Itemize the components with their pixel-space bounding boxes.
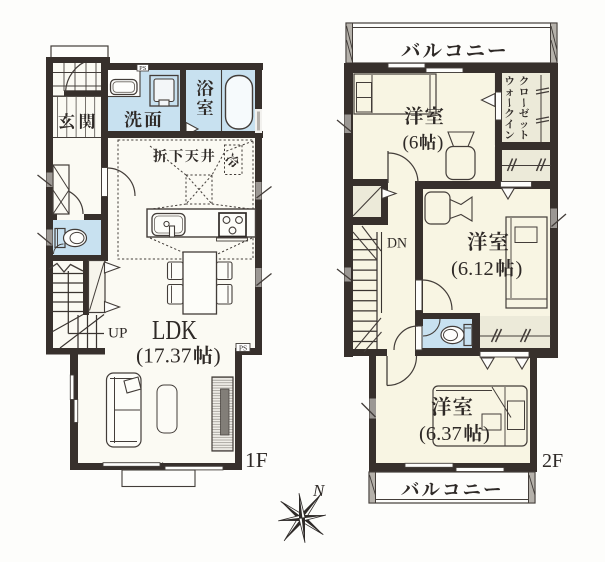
svg-text:(17.37: (17.37 [136, 344, 192, 368]
svg-text:(6: (6 [403, 133, 419, 154]
svg-text:PS: PS [139, 65, 147, 72]
svg-text:PS: PS [239, 343, 247, 352]
svg-text:N: N [312, 481, 326, 500]
svg-text:): ) [483, 423, 490, 445]
svg-text:DN: DN [387, 236, 407, 252]
svg-text:(6.12: (6.12 [451, 258, 494, 280]
svg-text:): ) [516, 258, 523, 280]
svg-text:2F: 2F [542, 450, 563, 472]
svg-text:1F: 1F [245, 448, 268, 472]
svg-text:UP: UP [108, 326, 128, 342]
svg-text:): ) [437, 133, 443, 154]
svg-text:): ) [214, 344, 221, 368]
svg-text:(6.37: (6.37 [419, 423, 462, 445]
svg-text:LDK: LDK [152, 315, 197, 345]
